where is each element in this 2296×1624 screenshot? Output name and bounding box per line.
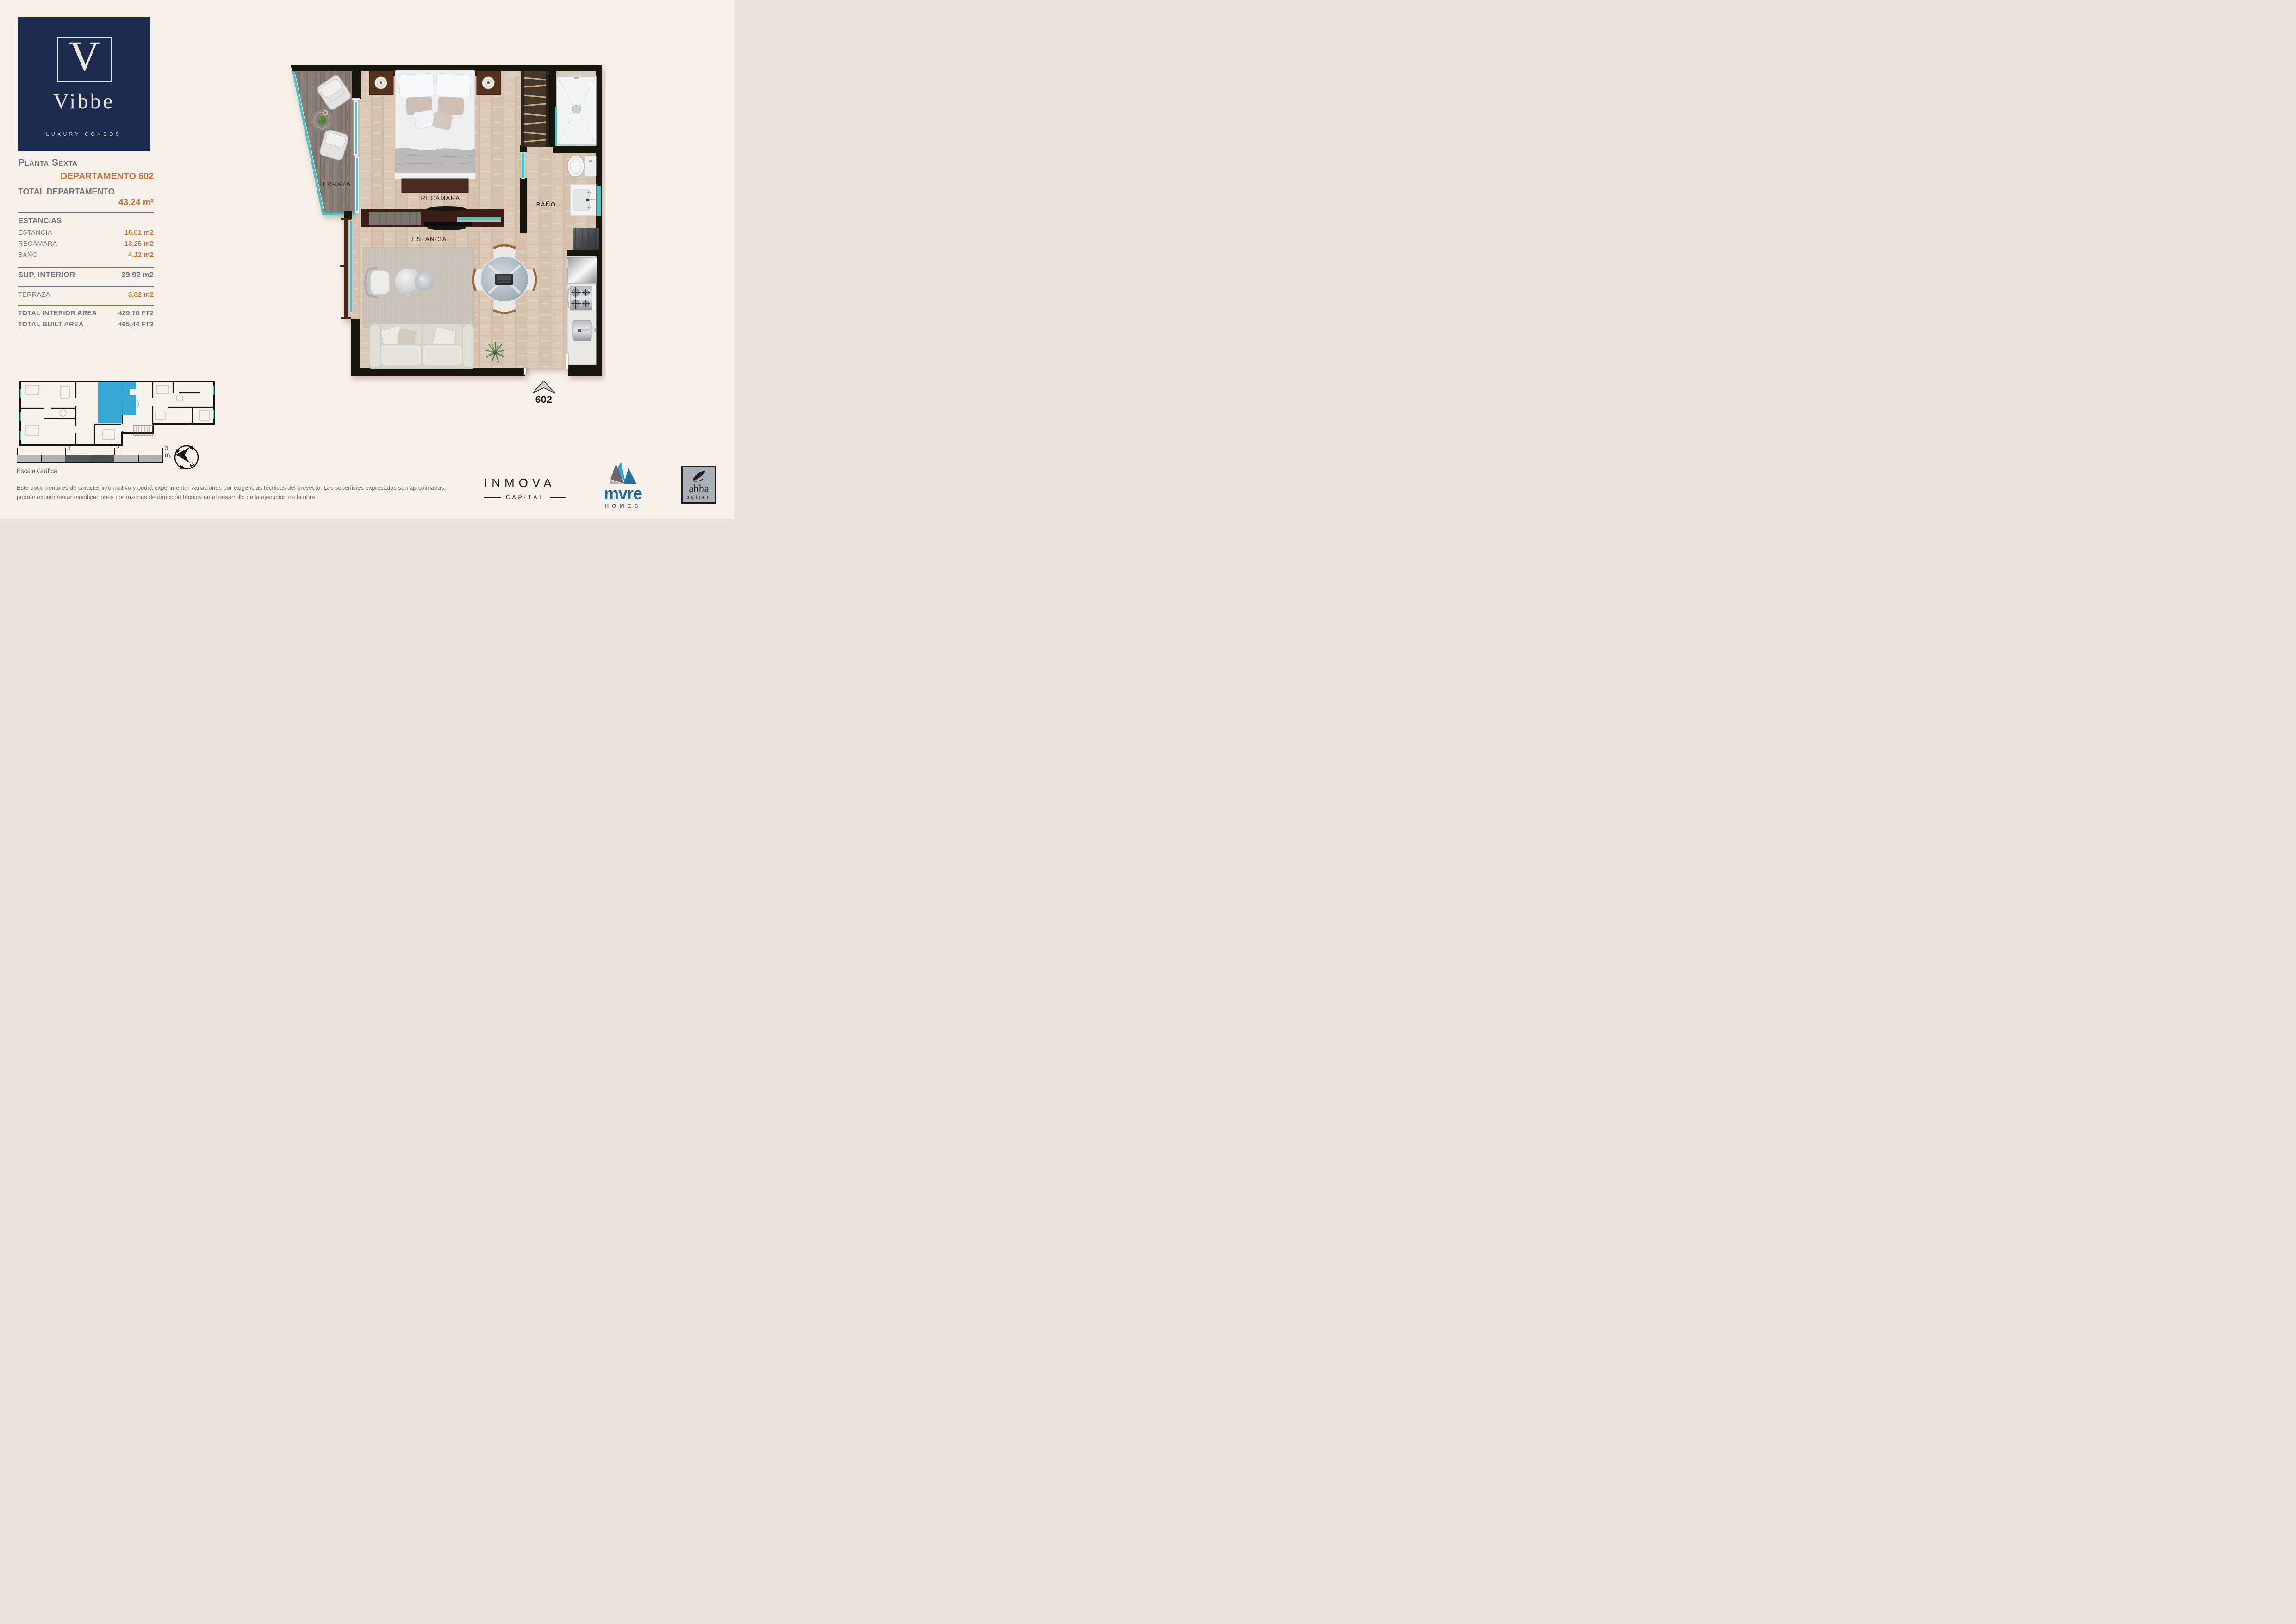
mvre-logo: mvre HOMES <box>599 462 647 509</box>
area-row-bano: BAÑO 4,12 m2 <box>18 251 154 259</box>
divider <box>18 212 154 213</box>
floor-plan: TERRAZA RECÁMARA ESTANCIA BAÑO 602 <box>287 63 606 408</box>
inmova-division: CAPITAL <box>501 494 550 500</box>
abba-sail-icon <box>691 470 707 483</box>
bathroom-glass-door <box>521 152 525 179</box>
total-depto-label: TOTAL DEPARTAMENTO <box>18 187 154 197</box>
recamara-label: RECÁMARA <box>421 194 460 201</box>
key-plan <box>17 380 216 449</box>
door-jamb <box>566 353 568 369</box>
total-built-row: TOTAL BUILT AREA 465,44 FT2 <box>18 320 154 328</box>
mvre-division: HOMES <box>599 503 647 509</box>
estancia-label: ESTANCIA <box>412 236 447 243</box>
abba-name: abba <box>689 483 709 494</box>
abba-division: suites <box>687 495 711 500</box>
scale-tick <box>162 448 163 462</box>
closet <box>521 71 549 147</box>
abba-logo: abba suites <box>681 466 716 504</box>
divider <box>18 305 154 306</box>
sections-title: ESTANCIAS <box>18 217 154 225</box>
bed-bench <box>402 179 468 193</box>
inmova-logo: INMOVA CAPITAL <box>484 476 566 500</box>
armchair <box>370 270 390 294</box>
total-interior-row: TOTAL INTERIOR AREA 429,70 FT2 <box>18 309 154 317</box>
coffee-table <box>415 272 434 291</box>
door-jamb <box>524 368 526 375</box>
mvre-mountain-icon <box>608 462 638 485</box>
graphic-scale: 1 2 3 m. Escala Gráfica <box>17 443 174 476</box>
entry-arrow-icon <box>533 381 555 393</box>
divider <box>18 286 154 287</box>
bano-label: BAÑO <box>536 201 556 208</box>
plan-body <box>291 65 602 376</box>
sofa <box>369 323 474 369</box>
tv-console <box>361 206 504 230</box>
total-depto-value: 43,24 m² <box>18 198 154 208</box>
logo-initial: V <box>57 31 112 81</box>
disclaimer-line1: Este documento es de caracter informativ… <box>17 483 479 493</box>
scale-number: 1 <box>68 444 71 451</box>
unit-title: DEPARTAMENTO 602 <box>18 171 154 182</box>
vibbe-logo: V Vibbe LUXURY CONDOS <box>18 17 150 151</box>
tv <box>424 222 472 226</box>
scale-caption: Escala Gráfica <box>17 468 57 475</box>
bathroom-window <box>597 186 601 216</box>
divider <box>18 267 154 268</box>
area-row-estancia: ESTANCIA 18,01 m2 <box>18 229 154 237</box>
unit-number: 602 <box>535 394 553 405</box>
balcony-door-frame <box>344 218 348 319</box>
brochure-page: V Vibbe LUXURY CONDOS Planta Sexta DEPAR… <box>0 0 734 519</box>
toilet-tank <box>585 156 596 177</box>
logo-brand-name: Vibbe <box>18 89 150 114</box>
terraza-label: TERRAZA <box>318 181 351 187</box>
logo-tagline: LUXURY CONDOS <box>18 131 150 137</box>
disclaimer-line2: podrán experimentar modificaciones por r… <box>17 493 479 502</box>
area-row-recamara: RECÁMARA 13,25 m2 <box>18 240 154 248</box>
compass-rose: N <box>172 443 202 474</box>
disclaimer: Este documento es de caracter informativ… <box>17 483 479 501</box>
spec-panel: Planta Sexta DEPARTAMENTO 602 TOTAL DEPA… <box>18 157 154 328</box>
area-row-sup-interior: SUP. INTERIOR 39,92 m2 <box>18 271 154 280</box>
inmova-name: INMOVA <box>484 476 566 490</box>
mvre-name: mvre <box>599 486 647 501</box>
floor-title: Planta Sexta <box>18 157 154 169</box>
area-row-terraza: TERRAZA 3,32 m2 <box>18 291 154 299</box>
scale-number: 2 <box>116 444 120 451</box>
